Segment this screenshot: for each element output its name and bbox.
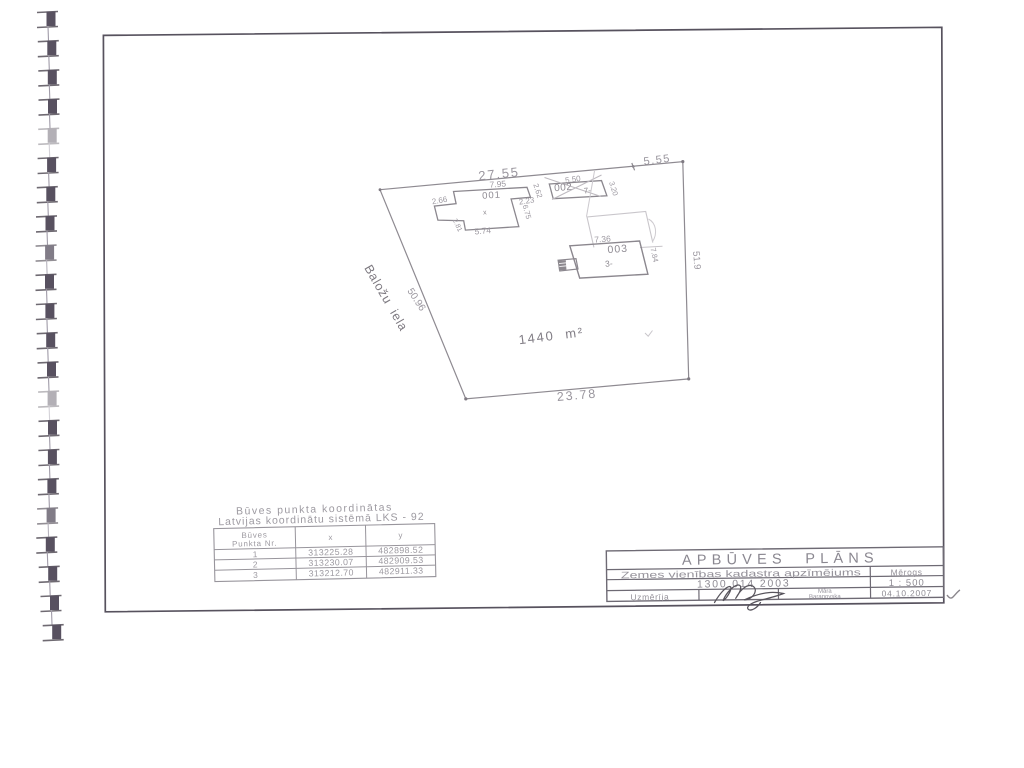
svg-text:7.95: 7.95 (489, 178, 506, 189)
svg-text:1: 1 (253, 549, 258, 559)
svg-text:Mērogs: Mērogs (891, 567, 923, 577)
svg-text:04.10.2007: 04.10.2007 (882, 588, 933, 599)
svg-text:APBŪVES PLĀNS: APBŪVES PLĀNS (682, 550, 879, 568)
svg-text:2: 2 (253, 559, 258, 569)
svg-text:7.36: 7.36 (594, 233, 611, 244)
svg-text:001: 001 (482, 190, 502, 202)
svg-text:x: x (328, 533, 332, 542)
svg-text:Punkta Nr.: Punkta Nr. (232, 539, 278, 549)
svg-text:51.9: 51.9 (690, 251, 703, 270)
svg-text:313230.07: 313230.07 (308, 557, 353, 568)
svg-text:3: 3 (253, 570, 258, 580)
svg-text:Baranovska: Baranovska (809, 594, 841, 600)
svg-text:5.74: 5.74 (474, 225, 492, 236)
svg-text:482909.53: 482909.53 (378, 555, 423, 566)
svg-text:Uzmērīja: Uzmērīja (630, 592, 669, 602)
svg-text:313212.70: 313212.70 (309, 567, 354, 578)
svg-text:482911.33: 482911.33 (379, 565, 424, 576)
svg-text:3-: 3- (605, 258, 613, 269)
svg-text:7-: 7- (583, 186, 591, 196)
svg-text:003: 003 (607, 243, 628, 256)
svg-text:482898.52: 482898.52 (378, 545, 423, 556)
svg-text:313225.28: 313225.28 (308, 547, 353, 558)
svg-text:y: y (398, 531, 402, 540)
